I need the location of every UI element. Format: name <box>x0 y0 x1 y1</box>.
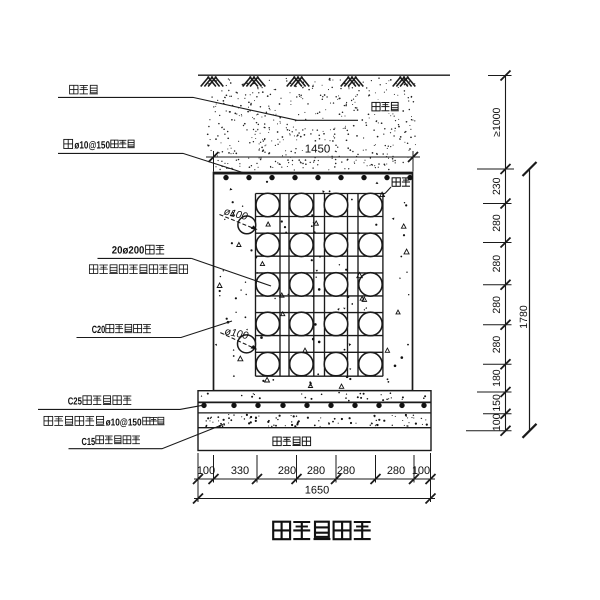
svg-text:1450: 1450 <box>305 143 331 155</box>
svg-text:C15: C15 <box>82 437 96 448</box>
svg-text:100: 100 <box>197 465 215 477</box>
svg-text:230: 230 <box>491 177 503 195</box>
svg-text:280: 280 <box>491 336 503 354</box>
svg-text:150: 150 <box>491 394 503 412</box>
svg-text:280: 280 <box>278 465 296 477</box>
svg-text:280: 280 <box>337 465 355 477</box>
svg-text:100: 100 <box>491 413 503 431</box>
svg-text:20ø200: 20ø200 <box>112 244 145 256</box>
svg-text:C25: C25 <box>68 397 82 408</box>
svg-text:330: 330 <box>231 465 249 477</box>
svg-text:280: 280 <box>491 296 503 314</box>
svg-text:ø10@150: ø10@150 <box>74 139 110 151</box>
svg-text:C20: C20 <box>92 324 106 336</box>
svg-text:ø10@150: ø10@150 <box>106 417 142 428</box>
svg-text:280: 280 <box>307 465 325 477</box>
svg-text:280: 280 <box>387 465 405 477</box>
svg-text:≥1000: ≥1000 <box>491 108 503 137</box>
svg-text:180: 180 <box>491 369 503 387</box>
svg-text:100: 100 <box>412 465 430 477</box>
svg-text:280: 280 <box>491 255 503 273</box>
svg-text:280: 280 <box>491 214 503 232</box>
svg-text:1780: 1780 <box>518 305 530 329</box>
svg-text:1650: 1650 <box>305 485 329 497</box>
